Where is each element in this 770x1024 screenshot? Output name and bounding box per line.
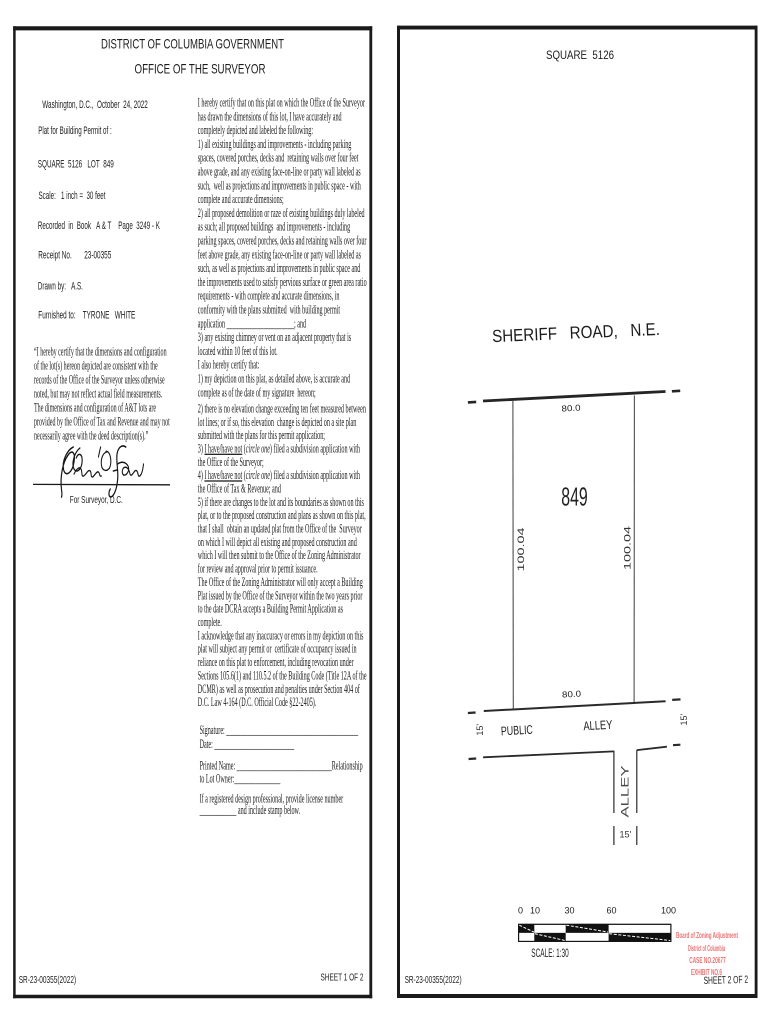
svg-text:80.0: 80.0 bbox=[562, 688, 582, 699]
svg-text:Recorded in Book A & T: Recorded in Book A & T Page 3249 - K bbox=[38, 220, 160, 232]
svg-text:____________ and include stamp: ____________ and include stamp below. bbox=[199, 804, 300, 818]
svg-text:60: 60 bbox=[606, 906, 616, 916]
svg-text:requirements - with complete a: requirements - with complete and accurat… bbox=[198, 290, 340, 304]
svg-text:30: 30 bbox=[564, 906, 574, 916]
svg-text:that I shall obtain an update: that I shall obtain an updated plat from… bbox=[198, 522, 362, 536]
svg-text:lot lines; or if so, this elev: lot lines; or if so, this elevation chan… bbox=[198, 416, 356, 430]
svg-text:I hereby certify that on this: I hereby certify that on this plat on wh… bbox=[198, 96, 366, 110]
svg-text:80.0: 80.0 bbox=[561, 402, 581, 413]
svg-text:Drawn by: A.S.: Drawn by: A.S. bbox=[38, 281, 83, 293]
svg-text:application __________________: application ______________________; and bbox=[198, 317, 306, 331]
svg-text:the Office of the Surveyor;: the Office of the Surveyor; bbox=[198, 456, 264, 470]
svg-text:to the date DCRA accepts a Bui: to the date DCRA accepts a Building Perm… bbox=[198, 602, 343, 616]
svg-text:Board of Zoning Adjustment: Board of Zoning Adjustment bbox=[676, 931, 738, 940]
svg-text:completely depicted and labele: completely depicted and labeled the foll… bbox=[198, 124, 313, 138]
svg-text:For Surveyor, D.C.: For Surveyor, D.C. bbox=[70, 494, 123, 506]
svg-text:feet above grade, any existing: feet above grade, any existing face-on-l… bbox=[198, 248, 361, 262]
svg-text:PUBLIC: PUBLIC bbox=[501, 723, 534, 739]
svg-text:Plat for Building Permit of :: Plat for Building Permit of : bbox=[38, 125, 112, 137]
svg-text:The Office of the Zoning Admin: The Office of the Zoning Administrator w… bbox=[198, 576, 363, 590]
svg-text:plat, or to the proposed const: plat, or to the proposed construction an… bbox=[198, 509, 366, 523]
svg-text:located within 10 feet of this: located within 10 feet of this lot. bbox=[198, 345, 278, 359]
svg-text:15': 15' bbox=[475, 724, 485, 736]
svg-text:on which I will depict all exi: on which I will depict all existing and … bbox=[198, 536, 357, 550]
svg-text:Washington, D.C., October 24: Washington, D.C., October 24, 2022 bbox=[42, 99, 148, 111]
svg-text:to Lot Owner:_______________: to Lot Owner:_______________ bbox=[200, 772, 281, 786]
svg-text:The dimensions and configurati: The dimensions and configuration of A&T … bbox=[34, 401, 156, 415]
svg-text:District of Columbia: District of Columbia bbox=[688, 944, 725, 953]
svg-text:Receipt No. 23-00355: Receipt No. 23-00355 bbox=[38, 250, 111, 262]
svg-text:100: 100 bbox=[661, 906, 676, 916]
svg-text:complete.: complete. bbox=[198, 616, 222, 630]
svg-text:SCALE: 1:30: SCALE: 1:30 bbox=[531, 946, 569, 960]
svg-text:complete as of the date of my: complete as of the date of my signature … bbox=[198, 386, 316, 400]
svg-text:such, as well as projections a: such, as well as projections and improve… bbox=[198, 262, 361, 276]
svg-text:SQUARE 5126 LOT 849: SQUARE 5126 LOT 849 bbox=[38, 158, 114, 170]
svg-text:3) I have/have not (circle one: 3) I have/have not (circle one) filed a … bbox=[198, 442, 360, 456]
svg-text:Relationship: Relationship bbox=[332, 759, 363, 773]
svg-text:ALLEY: ALLEY bbox=[583, 718, 613, 734]
svg-text:2) all proposed demolition or: 2) all proposed demolition or raze of ex… bbox=[198, 207, 365, 221]
svg-text:for review and approval prior: for review and approval prior to permit … bbox=[198, 562, 318, 576]
svg-text:SQUARE 5126: SQUARE 5126 bbox=[546, 50, 614, 62]
svg-text:Furnished to: TYRONE WHIT: Furnished to: TYRONE WHITE bbox=[38, 310, 135, 322]
svg-text:SR-23-00355(2022): SR-23-00355(2022) bbox=[405, 974, 462, 986]
svg-text:15': 15' bbox=[679, 713, 689, 725]
svg-text:849: 849 bbox=[561, 482, 588, 512]
svg-text:Sections 105.6(1) and 110.5.2: Sections 105.6(1) and 110.5.2 of the Bui… bbox=[198, 669, 367, 683]
svg-text:SHEET 1 OF 2: SHEET 1 OF 2 bbox=[321, 972, 364, 984]
svg-text:1) my depiction on this plat,: 1) my depiction on this plat, as detaile… bbox=[198, 372, 350, 386]
svg-text:ALLEY: ALLEY bbox=[620, 764, 632, 817]
svg-text:noted, but may not reflect act: noted, but may not reflect actual field … bbox=[34, 387, 162, 401]
svg-text:such, well as projections and: such, well as projections and improvemen… bbox=[198, 179, 361, 193]
svg-text:2) there is no elevation chang: 2) there is no elevation change exceedin… bbox=[198, 402, 366, 416]
svg-text:DCMR) as well as prosecution a: DCMR) as well as prosecution and penalti… bbox=[198, 683, 360, 697]
svg-text:0: 0 bbox=[518, 906, 523, 916]
svg-text:Printed Name: ________________: Printed Name: __________________________… bbox=[200, 759, 333, 773]
svg-text:records of the Office of the S: records of the Office of the Surveyor un… bbox=[34, 373, 165, 387]
svg-text:1) all existing buildings and: 1) all existing buildings and improvemen… bbox=[198, 138, 352, 152]
svg-text:complete and accurate dimensio: complete and accurate dimensions; bbox=[198, 193, 284, 207]
svg-text:DISTRICT OF COLUMBIA GOVERNMEN: DISTRICT OF COLUMBIA GOVERNMENT bbox=[101, 36, 284, 52]
svg-text:Date: ________________________: Date: __________________________ bbox=[200, 738, 295, 752]
svg-text:15': 15' bbox=[620, 830, 632, 840]
svg-text:100.04: 100.04 bbox=[622, 526, 633, 570]
svg-text:reliance on this plat to enfor: reliance on this plat to enforcement, in… bbox=[198, 656, 354, 670]
svg-text:I acknowledge that any inaccur: I acknowledge that any inaccuracy or err… bbox=[198, 629, 364, 643]
svg-text:10: 10 bbox=[530, 906, 540, 916]
svg-text:provided by the Office of Tax: provided by the Office of Tax and Revenu… bbox=[34, 415, 170, 429]
svg-text:plat will subject any permit o: plat will subject any permit or certific… bbox=[198, 643, 357, 657]
svg-text:spaces, covered porches, decks: spaces, covered porches, decks and retai… bbox=[198, 152, 359, 166]
svg-text:which I will then submit to th: which I will then submit to the Office o… bbox=[198, 549, 361, 563]
svg-text:submitted with the plans for t: submitted with the plans for this permit… bbox=[198, 429, 325, 443]
svg-text:as such; all proposed building: as such; all proposed buildings and impr… bbox=[198, 221, 350, 235]
svg-text:“I hereby certify that the dim: “I hereby certify that the dimensions an… bbox=[34, 345, 167, 359]
svg-text:I also hereby certify that:: I also hereby certify that: bbox=[198, 359, 260, 373]
svg-text:Scale: 1 inch = 30 feet: Scale: 1 inch = 30 feet bbox=[39, 190, 106, 202]
svg-text:100.04: 100.04 bbox=[516, 528, 527, 572]
svg-text:the improvements used to satis: the improvements used to satisfy perviou… bbox=[198, 276, 367, 290]
svg-text:4) I have/have not (circle one: 4) I have/have not (circle one) filed a … bbox=[198, 469, 360, 483]
svg-text:SR-23-00355(2022): SR-23-00355(2022) bbox=[19, 974, 76, 986]
svg-text:CASE NO.20677: CASE NO.20677 bbox=[689, 956, 726, 965]
svg-text:of the lot(s) hereon depicted: of the lot(s) hereon depicted are consis… bbox=[34, 359, 158, 373]
svg-text:the Office of Tax & Revenue; a: the Office of Tax & Revenue; and bbox=[198, 482, 281, 496]
svg-text:necessarily agree with the dee: necessarily agree with the deed descript… bbox=[34, 429, 148, 443]
svg-text:3) any existing chimney or ven: 3) any existing chimney or vent on an ad… bbox=[198, 331, 351, 345]
svg-text:above grade, and any existing: above grade, and any existing face-on-li… bbox=[198, 165, 361, 179]
svg-text:parking spaces, covered porche: parking spaces, covered porches, decks a… bbox=[198, 234, 367, 248]
svg-text:D.C. Law 4-164 (D.C. Official: D.C. Law 4-164 (D.C. Official Code §22-2… bbox=[198, 696, 317, 710]
svg-text:Signature: ___________________: Signature: _____________________________… bbox=[200, 724, 359, 738]
svg-text:SHEET 2 OF 2: SHEET 2 OF 2 bbox=[703, 974, 748, 987]
svg-text:Plat issued by the Office of t: Plat issued by the Office of the Surveyo… bbox=[198, 589, 363, 603]
svg-text:OFFICE OF THE SURVEYOR: OFFICE OF THE SURVEYOR bbox=[135, 60, 266, 76]
svg-text:has drawn the dimensions of th: has drawn the dimensions of this lot, I … bbox=[198, 110, 342, 124]
svg-text:5) if there are changes to the: 5) if there are changes to the lot and i… bbox=[198, 496, 364, 510]
svg-text:conformity with the plans subm: conformity with the plans submitted with… bbox=[198, 303, 340, 317]
